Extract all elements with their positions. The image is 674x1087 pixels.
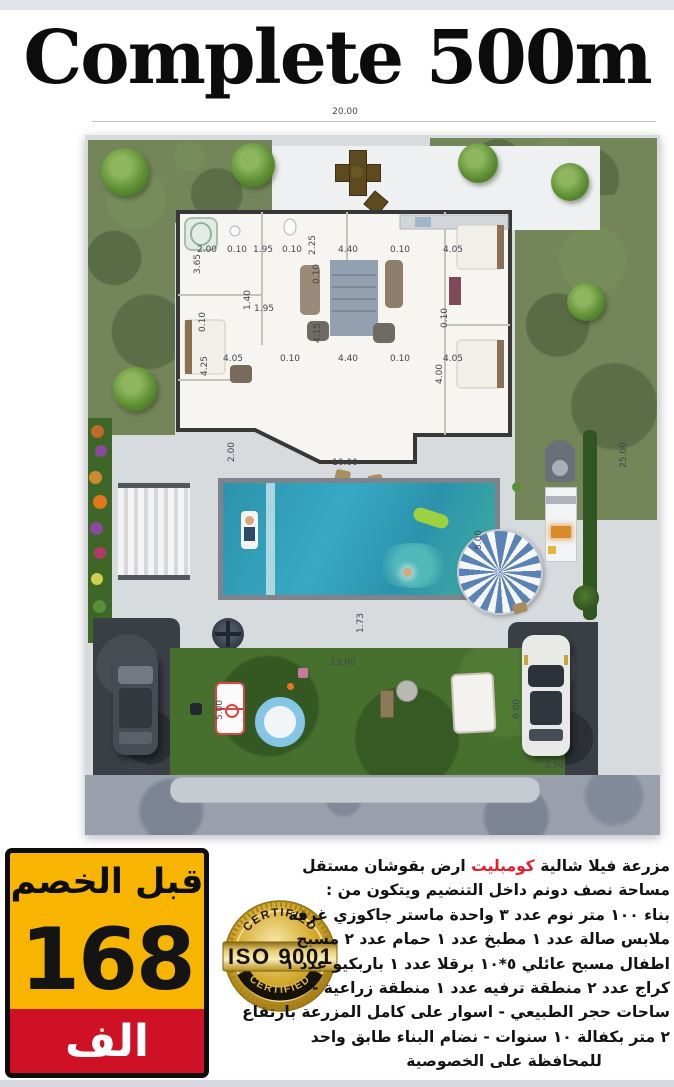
leaf-float-icon [412, 506, 451, 530]
windshield [118, 666, 153, 684]
swimmer-icon [403, 568, 412, 577]
bed-headboard [497, 225, 504, 269]
grill-icon [545, 440, 575, 482]
fire-glow [551, 526, 571, 538]
rear-window [529, 729, 563, 741]
ad-text-line: بناء ١٠٠ متر نوم عدد ٣ واحدة ماستر جاكوز… [338, 903, 670, 927]
car-white-icon [522, 635, 570, 756]
kitchen-sink-icon [415, 217, 431, 227]
bbq-cart-icon [545, 487, 577, 562]
pool-highlight [373, 543, 453, 588]
ad-text-line: ساحات حجر الطبيعي - اسوار على كامل المزر… [338, 1000, 670, 1024]
dimension-label: 20.00 [332, 107, 358, 117]
fire-pit-icon [212, 618, 244, 650]
price-box: قبل الخصم 168 الف [5, 848, 209, 1078]
dresser-icon [449, 277, 461, 305]
sofa-icon [300, 265, 320, 315]
ad-text-segment: مساحة نصف دونم داخل التنضيم ويتكون من : [326, 881, 670, 899]
price-unit: الف [10, 1009, 204, 1073]
car-roof [119, 688, 152, 728]
umbrella-icon [457, 529, 543, 615]
site-plan [85, 135, 660, 835]
armchair-icon [230, 365, 252, 383]
ball-icon [287, 683, 294, 690]
armchair-icon [307, 321, 329, 341]
bed-headboard [185, 320, 192, 374]
pool-divider [266, 483, 275, 595]
pool-lounger-float [241, 511, 258, 549]
ad-text-line: ملابس صالة عدد ١ مطبخ عدد ١ حمام عدد ٢ م… [338, 927, 670, 951]
ad-text-segment: اطفال مسبح عائلي ٥*١٠ برقلا عدد ١ باربكي… [285, 955, 670, 973]
ad-text-line: اطفال مسبح عائلي ٥*١٠ برقلا عدد ١ باربكي… [338, 952, 670, 976]
ad-text-segment: مزرعة فيلا شالية [535, 857, 670, 875]
picnic-table-icon [380, 690, 394, 718]
tent-icon [450, 672, 496, 734]
rear-window [119, 732, 152, 744]
ad-text-segment: ارض بقوشان مستقل [302, 857, 471, 875]
bbq-knob [548, 546, 556, 554]
headlight [524, 655, 528, 665]
bottom-window-strip [0, 1080, 674, 1087]
ad-text-line: ٢ متر بكفالة ١٠ سنوات - نضام البناء طابق… [338, 1025, 670, 1049]
bed-headboard [497, 340, 504, 388]
dimension-line-top [92, 121, 656, 122]
ad-text-segment: للمحافظة على الخصوصية [406, 1052, 602, 1070]
ad-text-segment: ٢ متر بكفالة ١٠ سنوات - نضام البناء طابق… [311, 1028, 670, 1046]
ad-description-text: مزرعة فيلا شالية كومبليت ارض بقوشان مستق… [338, 854, 670, 1074]
page-title: Complete 500m [0, 20, 674, 98]
bbq-shelf [546, 496, 576, 504]
kids-chair-icon [298, 668, 308, 678]
ad-text-segment: كراج عدد ٢ منطقة ترفيه عدد ١ منطقة زراعي… [312, 979, 670, 997]
sofa-icon [385, 260, 403, 308]
top-window-strip [0, 0, 674, 10]
ad-text-line: مزرعة فيلا شالية كومبليت ارض بقوشان مستق… [338, 854, 670, 878]
ad-text-line: للمحافظة على الخصوصية [338, 1049, 670, 1073]
ad-text-segment: ملابس صالة عدد ١ مطبخ عدد ١ حمام عدد ٢ م… [296, 930, 670, 948]
real-estate-flyer: Complete 500m [0, 0, 674, 1087]
bed-icon [457, 340, 503, 388]
plant-pot-icon [512, 482, 522, 492]
armchair-icon [373, 323, 395, 343]
ad-text-line: مساحة نصف دونم داخل التنضيم ويتكون من : [338, 878, 670, 902]
air-hockey-table-icon [215, 682, 245, 735]
ad-text-line: كراج عدد ٢ منطقة ترفيه عدد ١ منطقة زراعي… [338, 976, 670, 1000]
bed-icon [457, 225, 503, 269]
price-box-header: قبل الخصم [10, 853, 204, 911]
sidewalk [170, 777, 540, 803]
lawn-speaker-icon [190, 703, 202, 715]
sunroof [530, 691, 562, 725]
car-dark-icon [113, 652, 158, 755]
ad-text-segment: بناء ١٠٠ متر نوم عدد ٣ واحدة ماستر جاكوز… [288, 906, 670, 924]
ad-text-segment: ساحات حجر الطبيعي - اسوار على كامل المزر… [242, 1003, 670, 1021]
sink-icon [230, 226, 240, 236]
ad-highlight-word: كومبليت [471, 857, 535, 875]
windshield [528, 665, 564, 687]
headlight [564, 655, 568, 665]
price-amount: 168 [10, 911, 204, 1009]
swimsuit [244, 527, 255, 541]
grill-lid [552, 460, 568, 476]
round-table-icon [396, 680, 418, 702]
person-icon [245, 516, 254, 525]
pergola-icon [118, 483, 190, 580]
trampoline-icon [255, 697, 305, 747]
toilet-icon [284, 219, 296, 235]
